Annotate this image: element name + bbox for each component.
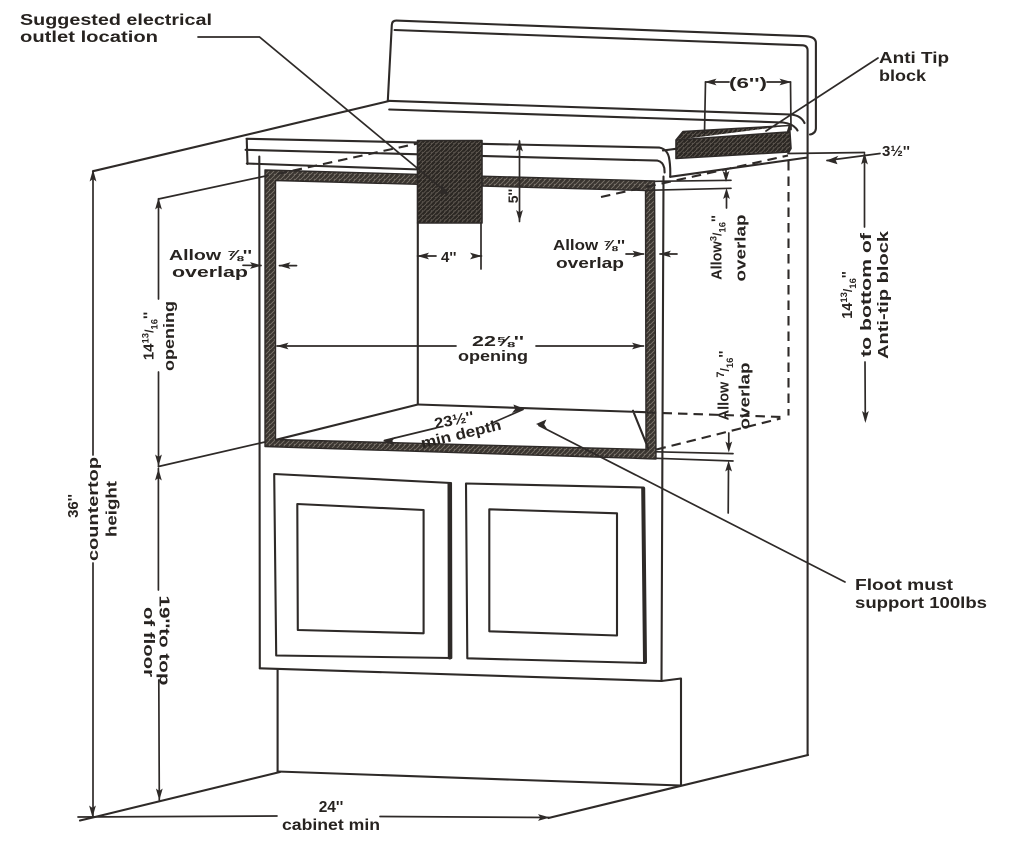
svg-text:to bottom of: to bottom of [859, 233, 875, 357]
svg-text:overlap: overlap [734, 214, 750, 281]
svg-text:block: block [879, 68, 926, 85]
svg-text:cabinet min: cabinet min [282, 817, 380, 834]
svg-text:Anti Tip: Anti Tip [879, 50, 949, 67]
svg-text:countertop: countertop [85, 457, 102, 561]
svg-text:height: height [104, 481, 121, 537]
svg-text:Anti-tip block: Anti-tip block [876, 230, 892, 359]
svg-text:19''to top: 19''to top [156, 596, 173, 686]
svg-text:4'': 4'' [441, 249, 456, 266]
svg-text:5'': 5'' [505, 189, 521, 203]
svg-text:opening: opening [458, 348, 528, 365]
svg-text:Suggested electrical: Suggested electrical [20, 12, 212, 29]
svg-text:overlap: overlap [738, 362, 754, 429]
svg-text:36'': 36'' [65, 494, 82, 518]
svg-text:24'': 24'' [319, 799, 344, 816]
svg-text:opening: opening [161, 301, 178, 371]
svg-text:support 100lbs: support 100lbs [855, 595, 987, 612]
svg-text:of floor: of floor [140, 607, 157, 677]
svg-text:(6''): (6'') [729, 76, 767, 92]
svg-text:overlap: overlap [172, 265, 248, 281]
svg-text:Allow ⅞'': Allow ⅞'' [553, 238, 625, 254]
svg-text:outlet location: outlet location [20, 29, 158, 46]
svg-text:Allow ⅞'': Allow ⅞'' [169, 248, 252, 264]
svg-text:overlap: overlap [556, 256, 624, 272]
svg-text:Floot must: Floot must [855, 577, 953, 594]
svg-text:3½'': 3½'' [882, 143, 910, 160]
